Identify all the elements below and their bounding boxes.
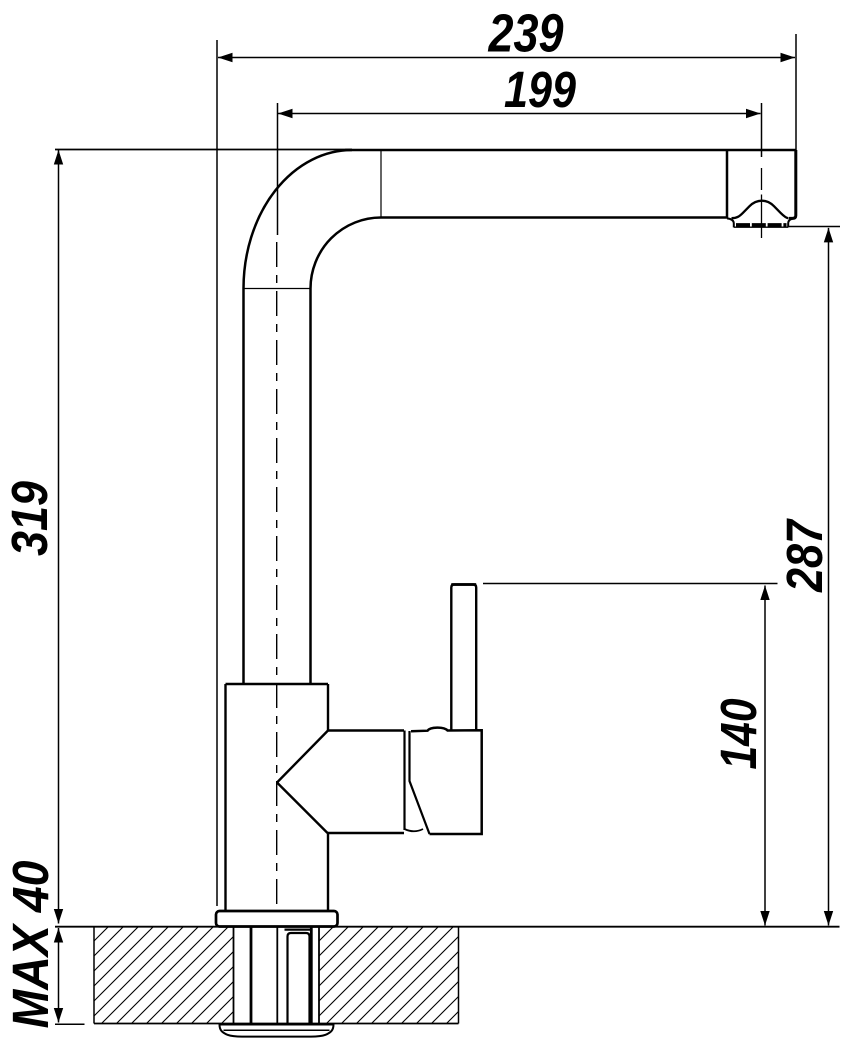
svg-text:239: 239 <box>488 4 564 64</box>
svg-text:199: 199 <box>504 61 577 118</box>
svg-text:MAX 40: MAX 40 <box>2 861 59 1029</box>
svg-text:319: 319 <box>1 480 58 556</box>
svg-text:140: 140 <box>710 699 767 770</box>
svg-text:287: 287 <box>776 518 833 593</box>
